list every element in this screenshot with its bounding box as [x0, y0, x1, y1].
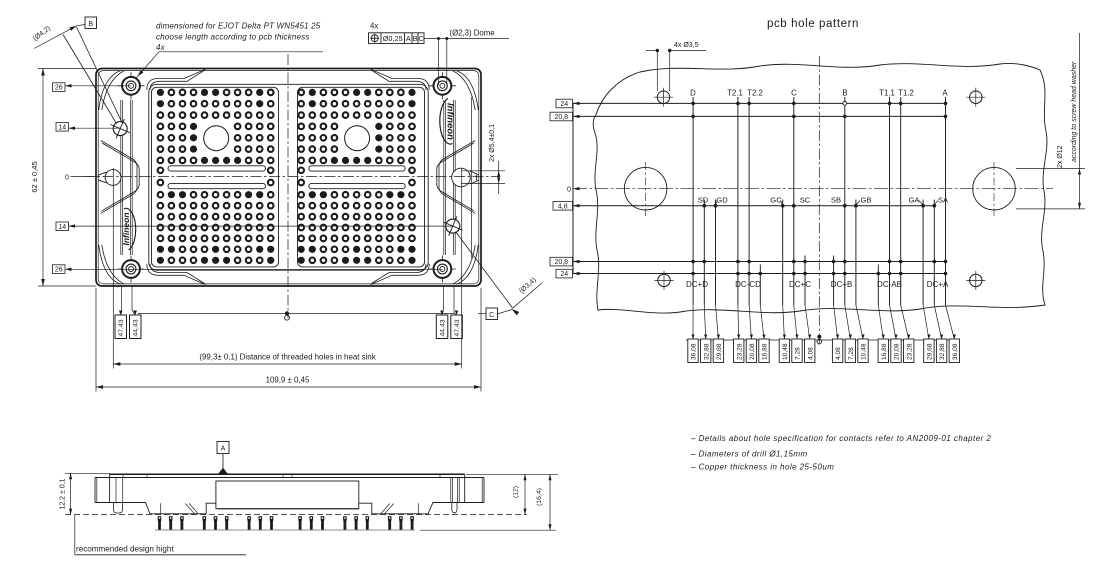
svg-text:16,88: 16,88 [881, 343, 888, 360]
svg-text:7,28: 7,28 [848, 347, 855, 360]
svg-text:4,8: 4,8 [558, 203, 568, 210]
svg-text:– Copper thickness in hole 25: – Copper thickness in hole 25-50um [690, 463, 834, 472]
svg-text:16,88: 16,88 [762, 343, 769, 360]
svg-text:SC: SC [800, 196, 811, 205]
svg-text:44,43: 44,43 [133, 319, 140, 336]
svg-text:B: B [413, 34, 418, 43]
svg-text:SD: SD [698, 196, 709, 205]
svg-text:26: 26 [55, 267, 63, 274]
svg-text:10,48: 10,48 [782, 343, 789, 360]
svg-text:32,88: 32,88 [939, 343, 946, 360]
svg-text:44,43: 44,43 [440, 319, 447, 336]
svg-text:A: A [221, 446, 226, 453]
svg-text:D: D [690, 89, 696, 98]
svg-text:32,88: 32,88 [703, 343, 710, 360]
svg-text:T2.1: T2.1 [727, 89, 743, 98]
svg-text:24: 24 [560, 101, 568, 108]
svg-text:4x Ø3,5: 4x Ø3,5 [674, 42, 699, 49]
svg-text:7,28: 7,28 [795, 347, 802, 360]
svg-text:20,08: 20,08 [749, 343, 756, 360]
svg-text:DC-CD: DC-CD [735, 280, 761, 289]
svg-text:2x Ø5,4±0,1: 2x Ø5,4±0,1 [489, 124, 496, 162]
svg-text:14: 14 [58, 224, 66, 231]
svg-text:SB: SB [831, 196, 841, 205]
svg-text:dimensioned for EJOT Delta PT: dimensioned for EJOT Delta PT WN5451 25 [156, 22, 321, 31]
svg-text:109,9 ± 0,45: 109,9 ± 0,45 [266, 376, 310, 385]
svg-text:20,08: 20,08 [894, 343, 901, 360]
svg-text:T1.1: T1.1 [879, 89, 895, 98]
svg-text:SA: SA [938, 196, 949, 205]
svg-text:Infineon: Infineon [445, 103, 456, 140]
svg-text:4x: 4x [156, 43, 166, 52]
svg-text:T2.2: T2.2 [747, 89, 763, 98]
svg-text:A: A [942, 89, 948, 98]
svg-text:24: 24 [560, 271, 568, 278]
svg-text:Ø0,25: Ø0,25 [383, 34, 403, 43]
svg-text:4x: 4x [370, 22, 378, 31]
svg-text:DC+A: DC+A [927, 280, 949, 289]
svg-text:GA: GA [909, 196, 921, 205]
svg-text:Infineon: Infineon [121, 212, 131, 245]
svg-text:(12): (12) [513, 486, 520, 498]
svg-text:36,08: 36,08 [952, 343, 959, 360]
svg-text:(16,4): (16,4) [536, 488, 543, 506]
svg-text:62 ± 0,45: 62 ± 0,45 [30, 161, 39, 192]
svg-text:29,68: 29,68 [716, 343, 723, 360]
svg-text:0: 0 [65, 175, 69, 182]
svg-text:recommended design hight: recommended design hight [76, 545, 174, 554]
svg-text:C: C [489, 312, 494, 319]
svg-text:20,8: 20,8 [554, 259, 568, 266]
svg-text:10,48: 10,48 [861, 343, 868, 360]
svg-text:GC: GC [770, 196, 782, 205]
svg-text:(Ø2,3) Dome: (Ø2,3) Dome [450, 28, 495, 37]
svg-text:T1.2: T1.2 [898, 89, 914, 98]
svg-text:47,43: 47,43 [454, 319, 461, 336]
svg-text:DC+C: DC+C [789, 280, 811, 289]
svg-text:DC+D: DC+D [686, 280, 708, 289]
svg-text:(Ø4,2): (Ø4,2) [32, 25, 52, 43]
svg-text:GB: GB [861, 196, 872, 205]
svg-text:23,28: 23,28 [906, 343, 913, 360]
svg-text:23,28: 23,28 [736, 343, 743, 360]
svg-text:29,68: 29,68 [927, 343, 934, 360]
svg-text:36,08: 36,08 [691, 343, 698, 360]
svg-text:2x Ø12: 2x Ø12 [1057, 145, 1064, 168]
svg-text:choose length according to pcb: choose length according to pcb thickness [156, 33, 310, 42]
svg-text:0: 0 [567, 187, 571, 194]
svg-text:14: 14 [58, 124, 66, 131]
svg-text:B: B [842, 89, 847, 98]
svg-text:GD: GD [716, 196, 728, 205]
svg-text:– Diameters of drill Ø1,15mm: – Diameters of drill Ø1,15mm [690, 450, 808, 459]
svg-text:47,43: 47,43 [118, 319, 125, 336]
svg-text:12,2 ± 0,1: 12,2 ± 0,1 [60, 478, 67, 509]
svg-text:DC-AB: DC-AB [877, 280, 902, 289]
svg-text:26: 26 [55, 85, 63, 92]
svg-text:A: A [406, 34, 411, 43]
svg-text:according to screw head washer: according to screw head washer [1071, 61, 1078, 162]
svg-text:(99,3± 0,1) Distance of thread: (99,3± 0,1) Distance of threaded holes i… [199, 353, 375, 362]
svg-text:(Ø3,4): (Ø3,4) [518, 277, 538, 295]
svg-text:C: C [418, 34, 423, 43]
svg-text:DC+B: DC+B [831, 280, 853, 289]
svg-text:– Details about hole specific: – Details about hole specification for c… [690, 434, 991, 443]
svg-text:20,8: 20,8 [554, 114, 568, 121]
svg-text:4,08: 4,08 [807, 347, 814, 360]
svg-text:C: C [791, 89, 797, 98]
svg-text:B: B [88, 21, 93, 28]
svg-text:pcb hole pattern: pcb hole pattern [767, 18, 859, 30]
svg-text:4,08: 4,08 [835, 347, 842, 360]
